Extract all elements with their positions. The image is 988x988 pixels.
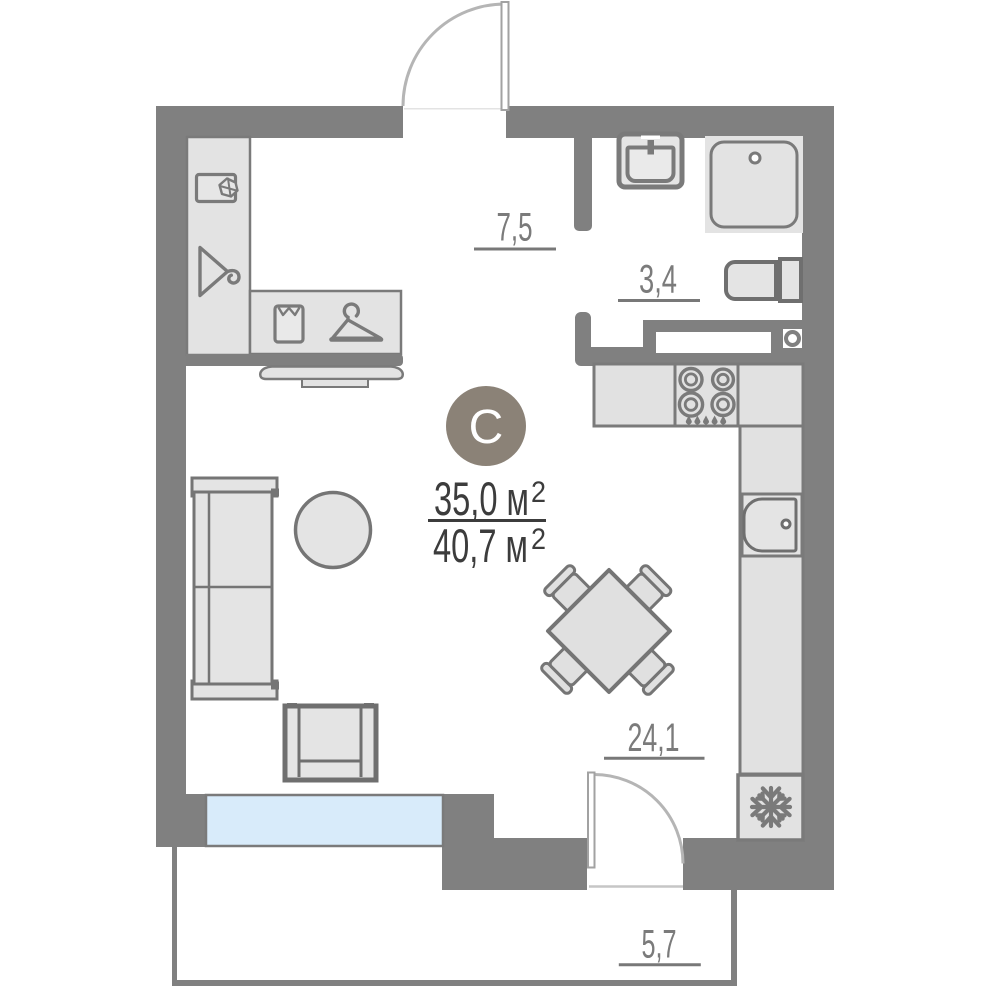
svg-text:2: 2 bbox=[531, 523, 546, 556]
svg-text:2: 2 bbox=[531, 476, 546, 509]
svg-text:24,1: 24,1 bbox=[628, 716, 680, 760]
svg-text:7,5: 7,5 bbox=[497, 206, 533, 250]
svg-text:40,7 м: 40,7 м bbox=[433, 519, 528, 572]
svg-text:35,0 м: 35,0 м bbox=[434, 472, 529, 525]
svg-text:5,7: 5,7 bbox=[642, 923, 677, 967]
svg-text:3,4: 3,4 bbox=[639, 258, 677, 302]
svg-text:C: C bbox=[469, 401, 504, 454]
